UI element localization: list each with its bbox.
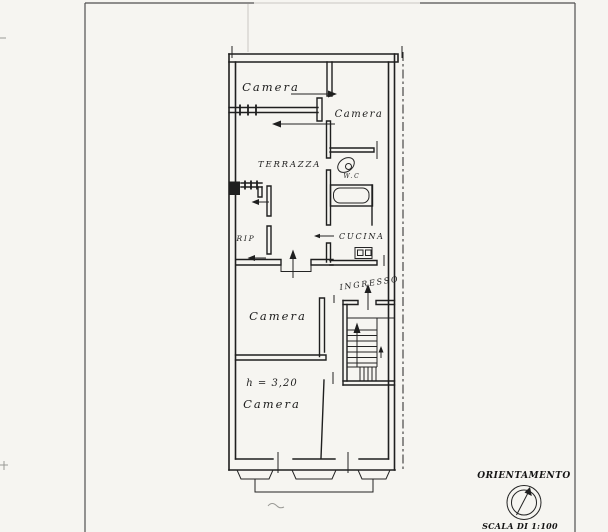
shaft-black-square xyxy=(229,182,241,196)
scale-label: SCALA DI 1:100 xyxy=(482,521,558,531)
room-label-camera-middle: Camera xyxy=(249,309,307,323)
floor-plan-drawing: Camera Camera TERRAZZA W.C RIP CUCINA IN… xyxy=(0,0,608,532)
room-label-rip: RIP xyxy=(235,234,255,243)
terrace-window-band xyxy=(229,98,322,121)
bathtub-icon xyxy=(331,185,373,206)
door-arrow-left xyxy=(272,121,335,128)
stair-up-arrow xyxy=(354,323,361,368)
window-sills xyxy=(237,452,390,479)
orientation-title: ORIENTAMENTO xyxy=(477,471,570,481)
entrance xyxy=(333,284,372,384)
room-label-wc: W.C xyxy=(343,173,360,180)
room-label-camera-top-left: Camera xyxy=(242,80,300,94)
door-threshold xyxy=(281,265,311,272)
stair-small-arrow xyxy=(379,346,384,358)
room-label-camera-top-right: Camera xyxy=(335,109,384,120)
dimension-ticks xyxy=(232,46,402,58)
door-jamb xyxy=(317,98,322,121)
bedroom-partition-top xyxy=(327,62,332,96)
title-block: ORIENTAMENTO SCALA DI 1:100 xyxy=(477,471,570,531)
scanned-floor-plan-sheet: Camera Camera TERRAZZA W.C RIP CUCINA IN… xyxy=(0,0,608,532)
registration-cross xyxy=(0,461,8,470)
compass-north-arrow-icon xyxy=(507,486,541,520)
room-label-cucina: CUCINA xyxy=(339,232,385,241)
central-wall xyxy=(236,260,333,272)
door-arrow-up-center xyxy=(290,250,297,279)
stair-treads xyxy=(347,330,377,367)
door-leaf-line xyxy=(321,380,324,458)
ceiling-height-note: h = 3,20 xyxy=(246,378,297,389)
middle-bedroom-walls xyxy=(236,298,327,360)
balcony xyxy=(255,479,373,492)
stove-icon xyxy=(355,248,372,259)
stair-return-flight xyxy=(360,367,376,381)
room-label-terrazza: TERRAZZA xyxy=(258,160,321,170)
pencil-smudge xyxy=(268,504,284,508)
room-label-camera-bottom: Camera xyxy=(243,397,301,411)
staircase-icon xyxy=(343,301,395,386)
